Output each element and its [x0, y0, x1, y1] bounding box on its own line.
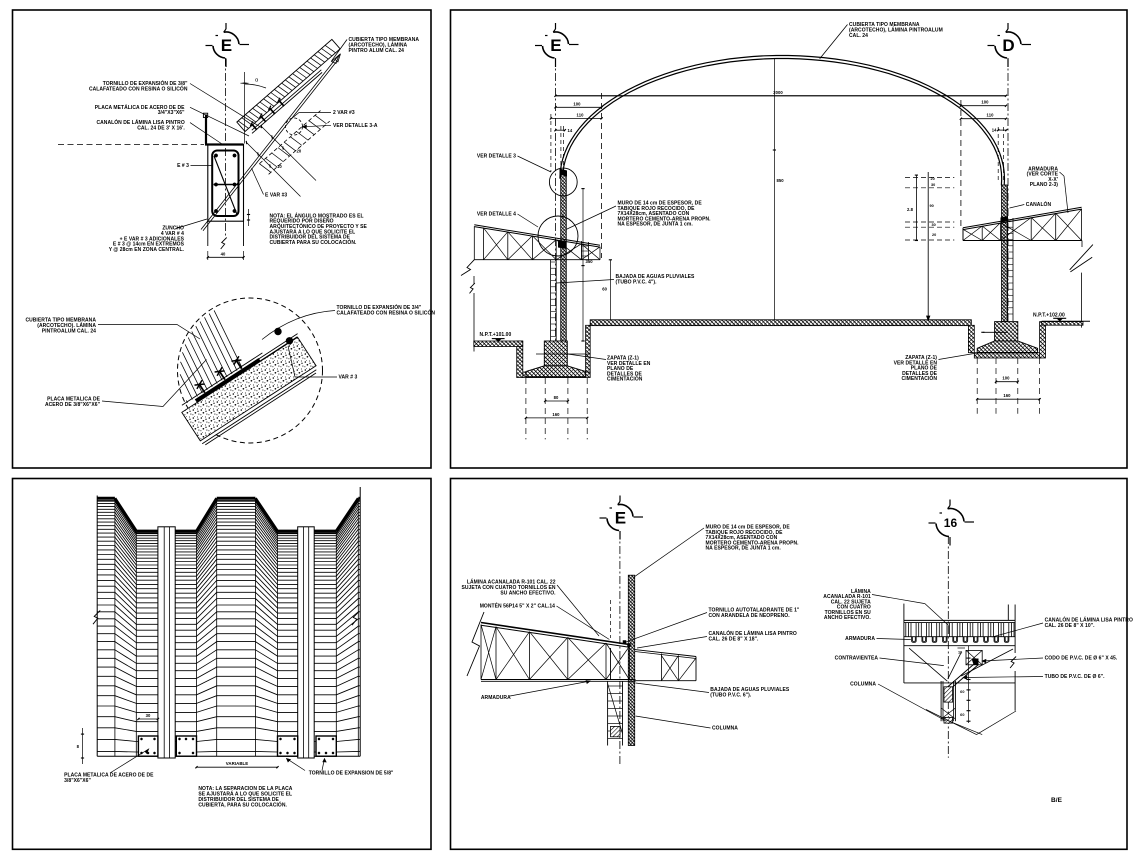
svg-text:ARMADURA: ARMADURA [845, 636, 875, 642]
svg-text:E # 3: E # 3 [177, 163, 189, 169]
svg-text:VER DETALLE 3-A: VER DETALLE 3-A [333, 123, 378, 129]
svg-text:CALAFATEADO CON RESINA O SILIC: CALAFATEADO CON RESINA O SILICÓN [89, 84, 188, 92]
svg-text:3/8"X6"X6": 3/8"X6"X6" [64, 778, 91, 784]
svg-text:N.P.T.+102.00: N.P.T.+102.00 [1033, 313, 1065, 319]
svg-text:90: 90 [930, 204, 934, 208]
svg-text:160: 160 [552, 412, 560, 417]
svg-text:110: 110 [987, 113, 995, 118]
svg-text:10: 10 [958, 651, 962, 655]
svg-text:60: 60 [960, 690, 964, 694]
svg-text:30: 30 [146, 713, 151, 718]
svg-text:COLUMNA: COLUMNA [712, 726, 738, 732]
svg-text:40: 40 [221, 252, 226, 257]
svg-text:PINTROALUM CAL. 24: PINTROALUM CAL. 24 [42, 328, 96, 334]
svg-text:20: 20 [297, 149, 302, 154]
svg-text:(TUBO P.V.C. 4").: (TUBO P.V.C. 4"). [616, 279, 658, 285]
svg-text:CONTRAVIENTEA: CONTRAVIENTEA [835, 656, 879, 662]
svg-text:850: 850 [777, 178, 785, 183]
svg-text:COLUMNA: COLUMNA [850, 682, 876, 688]
svg-text:CAL. 26 DE 8" X 18".: CAL. 26 DE 8" X 18". [709, 636, 759, 642]
svg-text:20: 20 [932, 233, 936, 237]
svg-text:CON ARANDELA DE NEOPRENO.: CON ARANDELA DE NEOPRENO. [709, 613, 791, 619]
svg-text:CALAFATEADO CON RESINA O SILIC: CALAFATEADO CON RESINA O SILICÓN [337, 308, 436, 316]
svg-text:350: 350 [586, 259, 594, 264]
svg-text:E: E [615, 509, 626, 528]
svg-text:PLANO 2-3): PLANO 2-3) [1030, 182, 1059, 188]
svg-text:100: 100 [573, 101, 581, 106]
svg-text:CIMENTACIÓN: CIMENTACIÓN [902, 374, 938, 382]
svg-text:14: 14 [568, 128, 573, 133]
svg-text:D: D [1002, 36, 1014, 55]
svg-text:80: 80 [554, 395, 559, 400]
svg-text:30: 30 [931, 183, 935, 187]
svg-text:20: 20 [931, 177, 935, 181]
svg-text:100: 100 [981, 100, 989, 105]
svg-text:TORNILLO DE EXPANSION DE 5/8": TORNILLO DE EXPANSION DE 5/8" [309, 771, 394, 777]
svg-text:2000: 2000 [773, 90, 783, 95]
svg-text:CIMENTACIÓN: CIMENTACIÓN [607, 375, 643, 383]
svg-text:VER DETALLE 3: VER DETALLE 3 [477, 154, 516, 160]
svg-text:MONTÉN 56P14 5" X 2" CAL.14: MONTÉN 56P14 5" X 2" CAL.14 [480, 602, 555, 610]
svg-text:10: 10 [277, 164, 282, 169]
svg-text:E: E [550, 36, 561, 55]
svg-text:110: 110 [577, 112, 585, 117]
svg-text:CAL. 24 DE 3' X 16'.: CAL. 24 DE 3' X 16'. [137, 125, 185, 131]
svg-text:NA ESPESOR, DE JUNTA 1 cm.: NA ESPESOR, DE JUNTA 1 cm. [706, 546, 782, 552]
svg-text:B/E: B/E [1051, 797, 1063, 804]
svg-text:CANALÓN: CANALÓN [1026, 200, 1052, 208]
svg-text:CODO DE P.V.C. DE Ø 6" X 45.: CODO DE P.V.C. DE Ø 6" X 45. [1045, 656, 1118, 662]
svg-text:16: 16 [944, 516, 958, 530]
svg-text:(TUBO P.V.C. 6").: (TUBO P.V.C. 6"). [710, 692, 752, 698]
svg-text:VAR # 3: VAR # 3 [339, 375, 358, 381]
svg-text:3/4"X3"X6": 3/4"X3"X6" [158, 110, 185, 116]
svg-text:CUBIERTA PARA SU COLOCACIÓN.: CUBIERTA PARA SU COLOCACIÓN. [270, 238, 358, 246]
svg-text:60: 60 [960, 713, 964, 717]
svg-text:ANCHO EFECTIVO.: ANCHO EFECTIVO. [824, 615, 871, 621]
svg-text:VARIABLE: VARIABLE [226, 761, 249, 766]
svg-text:30: 30 [932, 223, 936, 227]
svg-text:160: 160 [1003, 393, 1011, 398]
svg-text:Y @ 28cm EN ZONA CENTRAL.: Y @ 28cm EN ZONA CENTRAL. [109, 247, 185, 253]
svg-text:N.P.T.+101.00: N.P.T.+101.00 [480, 332, 512, 338]
svg-text:VER DETALLE 4: VER DETALLE 4 [477, 212, 516, 218]
svg-text:60: 60 [602, 287, 607, 292]
svg-text:PINTRO ALUM CAL. 24: PINTRO ALUM CAL. 24 [349, 48, 405, 54]
svg-text:2.8: 2.8 [907, 207, 914, 212]
svg-text:TUBO DE P.V.C. DE Ø 6".: TUBO DE P.V.C. DE Ø 6". [1045, 674, 1105, 680]
svg-text:NA ESPESOR, DE JUNTA 1 cm.: NA ESPESOR, DE JUNTA 1 cm. [618, 222, 694, 228]
svg-text:SU ANCHO EFECTIVO.: SU ANCHO EFECTIVO. [500, 590, 556, 596]
svg-text:ACERO DE 3/8"X6"X6": ACERO DE 3/8"X6"X6" [45, 402, 101, 408]
svg-text:2 VAR #3: 2 VAR #3 [333, 110, 355, 116]
svg-text:CAL. 26 DE 8" X 10".: CAL. 26 DE 8" X 10". [1045, 623, 1095, 629]
svg-text:14: 14 [992, 128, 997, 133]
svg-text:E VAR #3: E VAR #3 [265, 193, 287, 199]
svg-text:E: E [221, 36, 232, 55]
svg-text:ARMADURA: ARMADURA [481, 695, 511, 701]
svg-text:CUBIERTA, PARA SU COLOCACIÓN.: CUBIERTA, PARA SU COLOCACIÓN. [198, 801, 287, 809]
svg-text:100: 100 [1002, 376, 1010, 381]
svg-text:CAL. 24: CAL. 24 [849, 33, 868, 39]
